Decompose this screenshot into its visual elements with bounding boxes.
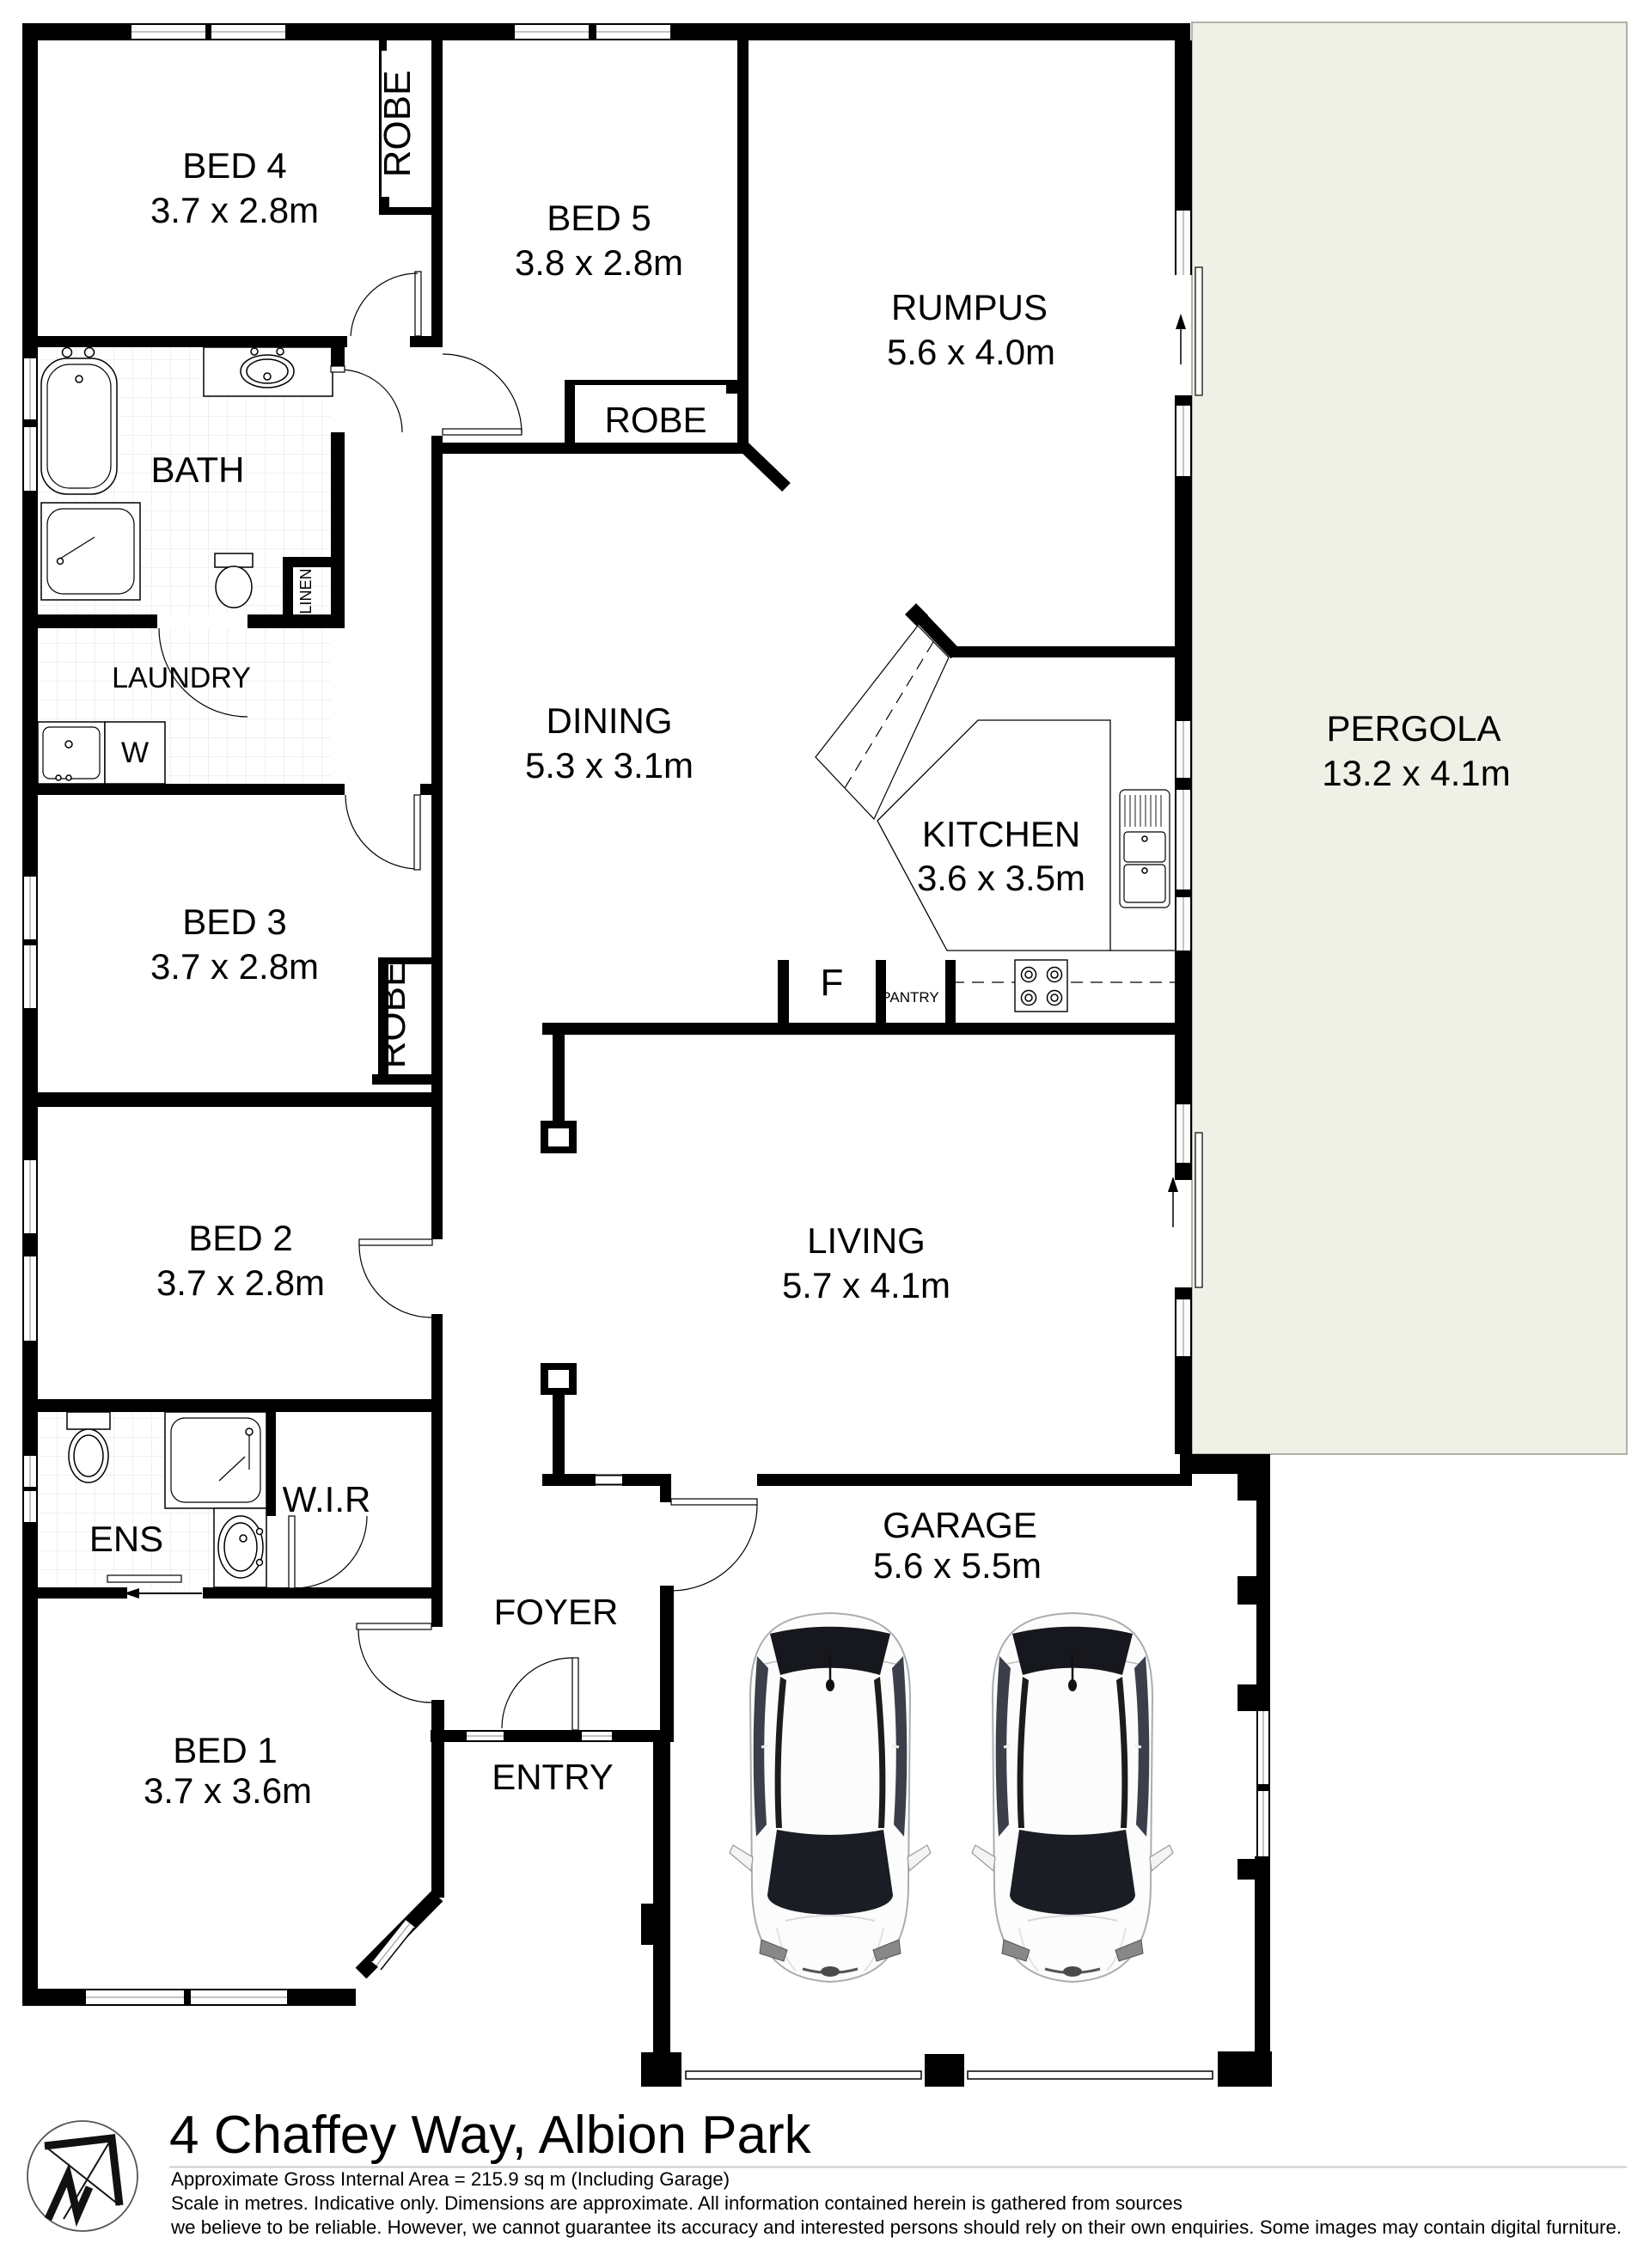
svg-text:3.7 x 2.8m: 3.7 x 2.8m [150,190,319,230]
svg-text:3.7 x 3.6m: 3.7 x 3.6m [144,1770,312,1811]
svg-text:BED 3: BED 3 [182,902,286,942]
svg-text:LAUNDRY: LAUNDRY [112,662,251,694]
svg-text:BED 1: BED 1 [173,1730,277,1770]
svg-text:GARAGE: GARAGE [883,1505,1037,1545]
svg-text:BED 4: BED 4 [182,145,286,186]
svg-text:KITCHEN: KITCHEN [922,814,1080,854]
svg-text:4 Chaffey Way, Albion Park: 4 Chaffey Way, Albion Park [169,2106,812,2165]
svg-text:LIVING: LIVING [807,1220,926,1261]
svg-text:5.6 x 5.5m: 5.6 x 5.5m [873,1545,1042,1586]
svg-text:PERGOLA: PERGOLA [1326,708,1500,749]
svg-text:5.7 x 4.1m: 5.7 x 4.1m [782,1265,950,1305]
svg-text:W: W [121,737,149,769]
svg-text:we believe to be reliable. How: we believe to be reliable. However, we c… [170,2216,1622,2238]
svg-text:BATH: BATH [151,449,245,490]
svg-text:Scale in metres. Indicative on: Scale in metres. Indicative only. Dimens… [171,2192,1182,2214]
svg-text:PANTRY: PANTRY [881,989,938,1006]
svg-text:DINING: DINING [547,700,673,741]
svg-text:ENS: ENS [89,1519,163,1559]
svg-text:BED 2: BED 2 [188,1218,292,1258]
svg-text:3.7 x 2.8m: 3.7 x 2.8m [156,1262,325,1303]
svg-text:13.2 x 4.1m: 13.2 x 4.1m [1322,753,1510,793]
svg-text:Approximate Gross Internal Are: Approximate Gross Internal Area = 215.9 … [171,2168,730,2190]
svg-text:W.I.R: W.I.R [283,1479,371,1519]
svg-text:3.6 x 3.5m: 3.6 x 3.5m [917,858,1085,898]
svg-text:ROBE: ROBE [371,962,413,1069]
svg-text:ROBE: ROBE [604,400,706,440]
svg-text:5.3 x 3.1m: 5.3 x 3.1m [525,745,694,786]
svg-text:BED 5: BED 5 [547,198,651,238]
svg-text:3.7 x 2.8m: 3.7 x 2.8m [150,946,319,987]
svg-text:LINEN: LINEN [297,568,315,614]
svg-text:ENTRY: ENTRY [492,1757,614,1797]
svg-text:5.6 x 4.0m: 5.6 x 4.0m [887,332,1055,372]
svg-text:ROBE: ROBE [376,70,419,178]
svg-text:3.8 x 2.8m: 3.8 x 2.8m [515,242,683,283]
svg-text:RUMPUS: RUMPUS [891,287,1048,327]
svg-text:FOYER: FOYER [494,1592,619,1632]
svg-text:F: F [821,962,844,1004]
